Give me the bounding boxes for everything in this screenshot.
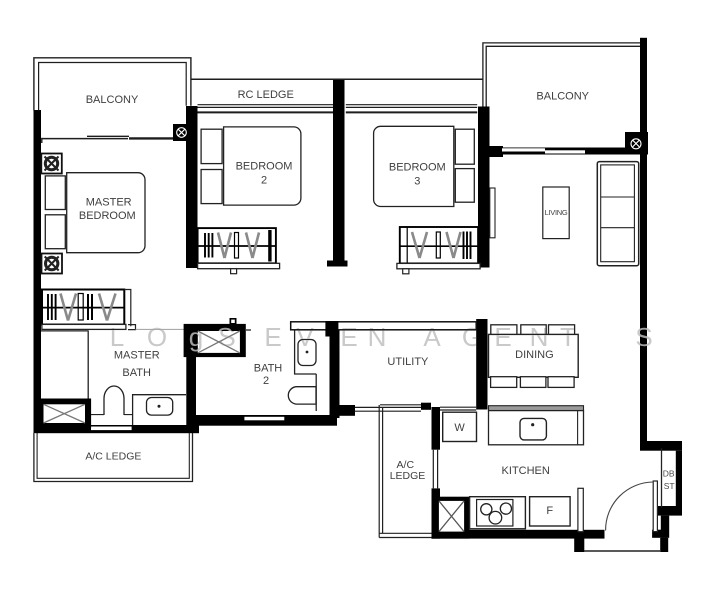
svg-text:BATH: BATH <box>254 363 283 375</box>
svg-text:MASTER: MASTER <box>86 197 132 209</box>
svg-text:RC LEDGE: RC LEDGE <box>238 89 294 101</box>
svg-text:BEDROOM: BEDROOM <box>236 161 293 173</box>
svg-text:KITCHEN: KITCHEN <box>502 465 550 477</box>
svg-text:g: g <box>189 322 203 352</box>
svg-text:3: 3 <box>414 176 420 188</box>
svg-text:BEDROOM: BEDROOM <box>79 210 136 222</box>
svg-text:BEDROOM: BEDROOM <box>389 162 446 174</box>
svg-text:BATH: BATH <box>122 367 151 379</box>
svg-text:T: T <box>560 322 576 352</box>
svg-text:BALCONY: BALCONY <box>86 94 139 106</box>
svg-text:N: N <box>368 322 387 352</box>
svg-text:V: V <box>296 322 314 352</box>
svg-text:2: 2 <box>263 375 269 387</box>
svg-text:LIVING: LIVING <box>545 208 568 217</box>
svg-text:DB: DB <box>663 468 675 478</box>
svg-text:S: S <box>635 322 652 352</box>
svg-text:E: E <box>494 322 511 352</box>
svg-text:BALCONY: BALCONY <box>536 91 589 103</box>
svg-text:W: W <box>454 422 465 434</box>
svg-text:L: L <box>110 322 124 352</box>
svg-text:2: 2 <box>261 175 267 187</box>
svg-text:G: G <box>462 322 482 352</box>
svg-text:F: F <box>546 505 553 517</box>
svg-text:N: N <box>530 322 549 352</box>
svg-text:E: E <box>340 322 357 352</box>
svg-text:E: E <box>264 322 281 352</box>
svg-text:ST: ST <box>664 481 675 491</box>
svg-text:O: O <box>147 322 167 352</box>
svg-text:A/C LEDGE: A/C LEDGE <box>85 451 141 463</box>
svg-text:S: S <box>218 322 235 352</box>
svg-text:LEDGE: LEDGE <box>390 470 426 482</box>
svg-text:A/C: A/C <box>397 459 415 471</box>
svg-text:UTILITY: UTILITY <box>387 356 429 368</box>
svg-text:A: A <box>423 322 441 352</box>
